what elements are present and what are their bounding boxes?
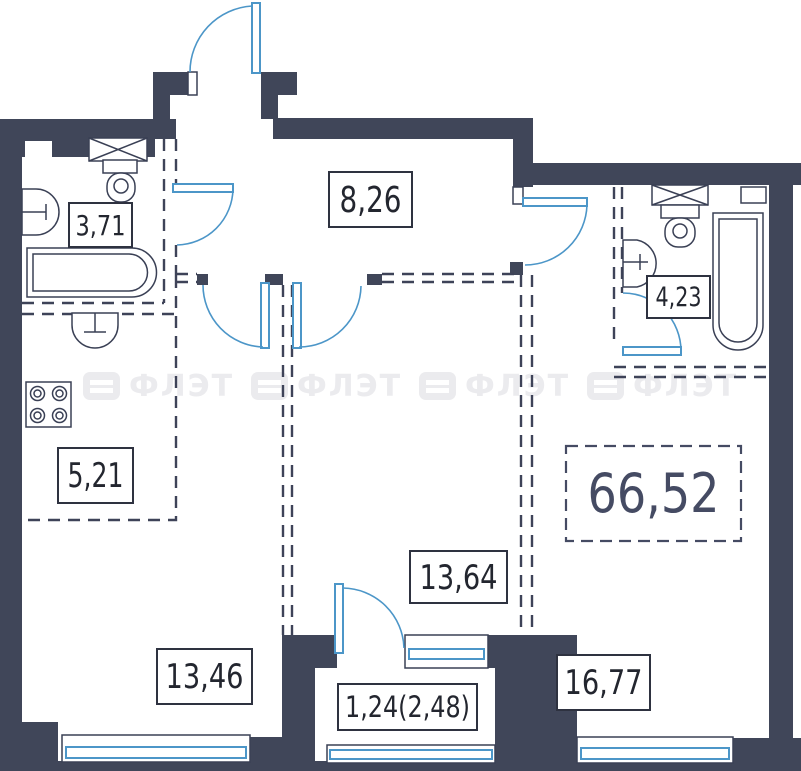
logo-slot <box>258 380 281 385</box>
watermark-tile: ФЛЭТ <box>419 369 570 404</box>
wall-segment <box>273 118 533 139</box>
wall-stub <box>367 274 382 285</box>
label-text: 1,24(2,48) <box>345 690 470 724</box>
watermark-text: ФЛЭТ <box>129 369 234 404</box>
logo-slot <box>426 388 449 393</box>
bathtub-icon <box>713 213 763 350</box>
corridor-door-leaf <box>523 198 587 206</box>
area-label-room-bottom-right: 16,77 <box>557 655 650 710</box>
area-label-hallway: 8,26 <box>329 172 412 227</box>
logo-slot <box>594 380 617 385</box>
window-glass <box>330 750 492 759</box>
wall-segment <box>261 95 278 119</box>
toilet-icon <box>661 205 699 247</box>
flet-logo-icon <box>83 372 120 400</box>
bathtub-icon <box>27 248 157 297</box>
area-label-bathroom-top-right: 4,23 <box>647 276 710 318</box>
total-area-label: 66,52 <box>566 446 741 541</box>
entry-door-frame <box>188 72 197 95</box>
floor-plan-page: ФЛЭТ ФЛЭТ ФЛЭТ ФЛЭТ <box>0 0 801 771</box>
label-text: 3,71 <box>76 209 126 242</box>
toilet-bowl <box>107 173 135 202</box>
logo-slot <box>90 380 113 385</box>
wall-segment <box>153 95 170 139</box>
wall-segment <box>495 668 530 771</box>
kitchen-door-leaf <box>261 283 269 348</box>
toilet-bowl <box>665 218 695 247</box>
toilet-tank <box>103 160 137 173</box>
wall-segment <box>261 72 297 95</box>
wall-stub <box>197 274 208 285</box>
wall-segment <box>250 737 282 771</box>
watermark-text: ФЛЭТ <box>633 369 738 404</box>
wall-segment <box>282 668 315 771</box>
watermark-text: ФЛЭТ <box>297 369 402 404</box>
door-frame <box>513 187 523 204</box>
duct-shaft <box>741 187 766 203</box>
area-label-balcony: 1,24(2,48) <box>338 684 477 730</box>
window-glass <box>66 747 246 758</box>
area-label-bathroom-top-left: 3,71 <box>69 203 132 247</box>
label-text: 8,26 <box>340 180 402 221</box>
watermark-tile: ФЛЭТ <box>251 369 402 404</box>
stove-icon <box>26 382 71 427</box>
bathroom2-door-leaf <box>623 347 681 355</box>
watermark-tile: ФЛЭТ <box>587 369 738 404</box>
wall-segment <box>769 185 793 738</box>
wall-segment <box>153 72 188 95</box>
label-text: 13,64 <box>420 558 498 598</box>
wall-segment <box>533 163 801 185</box>
wall-segment <box>733 738 801 761</box>
wall-segment <box>282 635 337 668</box>
label-text: 13,46 <box>166 657 244 697</box>
sink-icon <box>22 189 59 235</box>
toilet-icon <box>103 160 137 202</box>
window-glass <box>581 748 729 759</box>
washing-machine-icon <box>89 138 147 161</box>
window-glass <box>409 649 484 659</box>
logo-slot <box>426 380 449 385</box>
watermark-text: ФЛЭТ <box>465 369 570 404</box>
label-text: 4,23 <box>656 282 702 313</box>
watermark-tile: ФЛЭТ <box>83 369 234 404</box>
bathroom1-door-leaf <box>173 184 233 192</box>
wall-niche <box>25 141 52 157</box>
room-middle-door-leaf <box>293 283 301 348</box>
logo-slot <box>594 388 617 393</box>
wall-segment <box>488 635 530 668</box>
label-text: 5,21 <box>68 456 124 496</box>
logo-slot <box>90 388 113 393</box>
label-text: 16,77 <box>565 663 643 703</box>
wall-segment <box>0 157 22 771</box>
wall-segment <box>513 139 533 187</box>
area-label-room-bottom-left: 13,46 <box>157 649 252 704</box>
flet-logo-icon <box>419 372 456 400</box>
logo-slot <box>258 388 281 393</box>
washing-machine-icon <box>652 185 708 205</box>
entry-door-leaf <box>252 3 260 73</box>
toilet-tank <box>661 205 699 218</box>
floor-plan: ФЛЭТ ФЛЭТ ФЛЭТ ФЛЭТ <box>0 0 801 771</box>
area-label-kitchen: 5,21 <box>58 448 133 503</box>
balcony-door-leaf <box>335 584 343 653</box>
area-label-room-middle: 13,64 <box>410 551 507 603</box>
total-area-text: 66,52 <box>588 462 720 525</box>
